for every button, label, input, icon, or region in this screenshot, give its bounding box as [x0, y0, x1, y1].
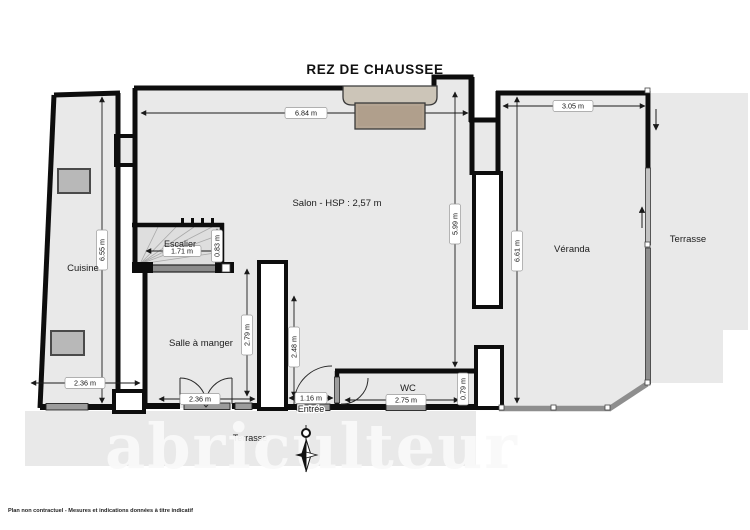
label-wc: WC — [400, 383, 416, 394]
svg-text:2.48 m: 2.48 m — [290, 336, 299, 358]
label-cuisine: Cuisine — [67, 263, 99, 274]
window-cuisine — [46, 404, 88, 411]
gap-3 — [121, 270, 143, 392]
gap-1 — [121, 95, 134, 136]
disclaimer-text: Plan non contractuel - Mesures et indica… — [8, 508, 193, 514]
label-salon: Salon - HSP : 2,57 m — [292, 198, 381, 209]
sliding-door — [646, 168, 651, 245]
cuisine-fixture-bottom — [51, 331, 84, 355]
page-title: REZ DE CHAUSSEE — [306, 62, 443, 77]
cuisine-fixture-top — [58, 169, 90, 193]
svg-text:0.79 m: 0.79 m — [459, 378, 468, 400]
dim-escalier-profondeur: 0.83 m — [212, 229, 223, 263]
wall-band-wc-veranda — [476, 347, 502, 408]
svg-text:2.36 m: 2.36 m — [189, 395, 211, 404]
door-leaf-wc — [335, 377, 340, 403]
label-terrasse-droite: Terrasse — [670, 234, 706, 245]
floor-plan-svg: REZ DE CHAUSSEE — [0, 0, 750, 530]
svg-text:2.79 m: 2.79 m — [243, 324, 252, 346]
svg-text:2.75 m: 2.75 m — [395, 396, 417, 405]
dim-wc-hauteur: 0.79 m — [458, 373, 469, 405]
svg-text:1.16 m: 1.16 m — [300, 394, 322, 403]
svg-text:6.84 m: 6.84 m — [295, 109, 317, 118]
window-salle — [235, 403, 252, 410]
svg-text:6.61 m: 6.61 m — [513, 240, 522, 262]
wall-band-salle-entree — [259, 262, 286, 409]
dim-entree-largeur: 1.16 m — [289, 393, 333, 404]
svg-text:6.55 m: 6.55 m — [98, 239, 107, 261]
stair-railing — [151, 265, 216, 272]
svg-text:2.36 m: 2.36 m — [74, 379, 96, 388]
label-veranda: Véranda — [554, 244, 591, 255]
passage-bottom-floor — [472, 305, 500, 349]
floor-plan-page: REZ DE CHAUSSEE — [0, 0, 750, 530]
label-salle-a-manger: Salle à manger — [169, 338, 233, 349]
gap-2 — [121, 164, 134, 270]
label-escalier: Escalier — [164, 239, 196, 249]
wall-pillar-bottom — [114, 391, 144, 412]
fireplace — [343, 86, 437, 129]
svg-text:0.83 m: 0.83 m — [213, 235, 222, 257]
svg-text:3.05 m: 3.05 m — [562, 102, 584, 111]
watermark-text: abriculteur — [105, 410, 519, 483]
svg-text:5.99 m: 5.99 m — [451, 213, 460, 235]
wall-band-salon-veranda — [474, 173, 501, 307]
